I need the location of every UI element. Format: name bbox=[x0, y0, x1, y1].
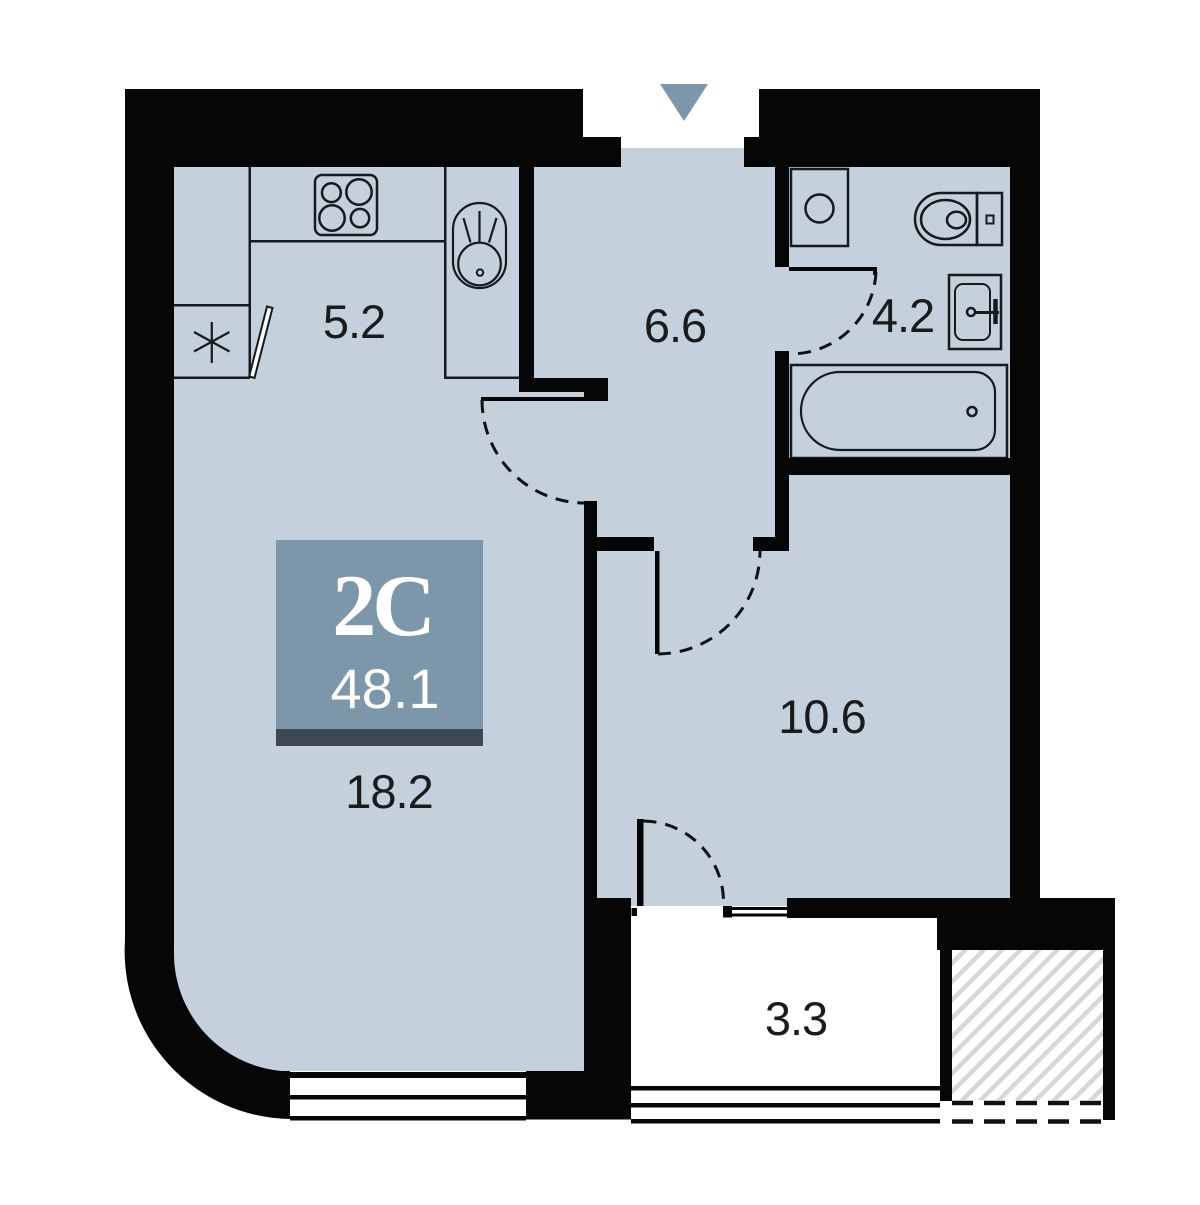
svg-text:48.1: 48.1 bbox=[331, 657, 440, 720]
svg-text:18.2: 18.2 bbox=[345, 765, 432, 818]
svg-text:4.2: 4.2 bbox=[872, 289, 934, 342]
svg-text:6.6: 6.6 bbox=[644, 299, 706, 352]
svg-text:2C: 2C bbox=[332, 558, 432, 655]
svg-text:5.2: 5.2 bbox=[323, 295, 385, 348]
svg-text:3.3: 3.3 bbox=[765, 992, 827, 1045]
svg-text:10.6: 10.6 bbox=[778, 690, 865, 743]
